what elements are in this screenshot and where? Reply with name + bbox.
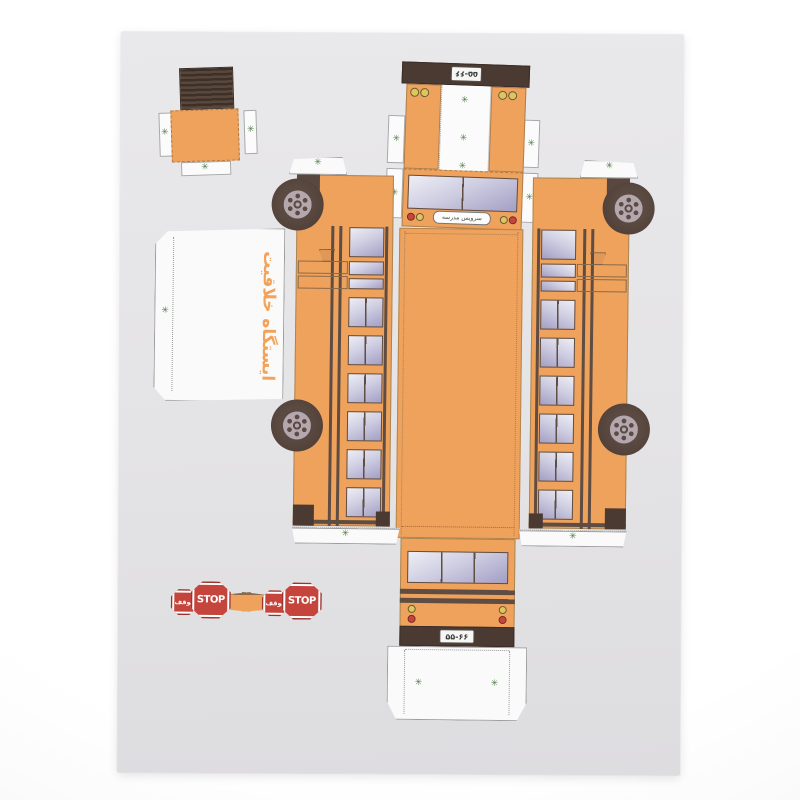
passenger-window	[540, 337, 575, 367]
glue-mark: ✳	[606, 162, 614, 171]
roof-panel	[396, 228, 524, 539]
tail-light	[499, 616, 507, 624]
hood-top-panel	[170, 108, 240, 162]
rear-wheel	[598, 403, 651, 456]
flap-face	[386, 646, 527, 722]
passenger-window	[347, 373, 382, 403]
glue-mark: ✳	[527, 140, 535, 149]
door-window	[349, 278, 384, 289]
photo-background: ✳ ✳ ✳ ۵۵-۶۶ سرویس مدرسه	[0, 0, 800, 800]
rear-license-plate: ۵۵-۶۶	[439, 629, 474, 643]
glue-mark: ✳	[459, 134, 467, 143]
bumper-corner	[293, 504, 314, 525]
glue-mark: ✳	[314, 159, 322, 168]
door-window	[541, 229, 576, 259]
rear-window	[407, 551, 508, 584]
side-sign-strip	[577, 279, 627, 293]
passenger-window	[348, 335, 383, 365]
passenger-window	[540, 299, 575, 329]
side-sign-strip	[577, 264, 627, 278]
windshield	[407, 175, 518, 213]
tail-light	[408, 615, 416, 623]
brand-text: ایستگاه خلاقیت	[257, 236, 279, 396]
passenger-window	[539, 375, 574, 405]
marker-light	[408, 605, 416, 613]
left-side-panel: ✳ ✳	[267, 148, 407, 550]
floor-piece: ✳ ایستگاه خلاقیت	[153, 227, 285, 403]
glue-mark: ✳	[247, 126, 255, 135]
glue-mark: ✳	[342, 530, 350, 539]
glue-mark: ✳	[458, 162, 466, 171]
glue-mark: ✳	[392, 135, 400, 144]
wheel-hub	[283, 411, 311, 439]
glue-mark: ✳	[161, 307, 169, 316]
wheel-hub	[614, 194, 642, 222]
stop-sign-piece: توقف STOP	[240, 581, 328, 620]
door-window	[349, 227, 384, 257]
glue-mark: ✳	[201, 163, 209, 172]
glue-mark: ✳	[569, 533, 577, 542]
glue-mark: ✳	[461, 96, 469, 105]
front-license-plate: ۵۵-۶۶	[451, 66, 483, 82]
passenger-window	[347, 411, 382, 441]
passenger-window	[348, 297, 383, 327]
door-window	[541, 263, 576, 277]
right-side-panel: ✳ ✳	[515, 151, 655, 553]
side-sign-strip	[298, 276, 348, 290]
glue-mark: ✳	[415, 679, 423, 688]
passenger-window	[539, 413, 574, 443]
glue-mark: ✳	[161, 129, 169, 138]
passenger-window	[538, 489, 573, 519]
wheel-hub	[610, 415, 638, 443]
bumper-corner	[529, 513, 543, 528]
passenger-window	[538, 451, 573, 481]
side-sign-strip	[298, 261, 348, 275]
wheel-hub	[283, 190, 311, 218]
door-window	[349, 261, 384, 275]
passenger-window	[346, 449, 381, 479]
stop-octagon-en: STOP	[191, 581, 231, 618]
template-layer: ✳ ✳ ✳ ۵۵-۶۶ سرویس مدرسه	[0, 0, 800, 800]
grille	[179, 67, 234, 111]
door-window	[541, 280, 576, 291]
front-wheel	[602, 182, 655, 235]
marker-light	[499, 606, 507, 614]
bumper-corner	[376, 511, 390, 526]
stop-octagon-en: STOP	[282, 582, 322, 619]
glue-mark: ✳	[491, 680, 499, 689]
bumper-corner	[605, 508, 626, 529]
front-destination-sign: سرویس مدرسه	[433, 210, 491, 225]
rear-base-flap: ✳ ✳	[386, 646, 527, 722]
hood-box-piece: ✳ ✳ ✳	[151, 60, 265, 181]
